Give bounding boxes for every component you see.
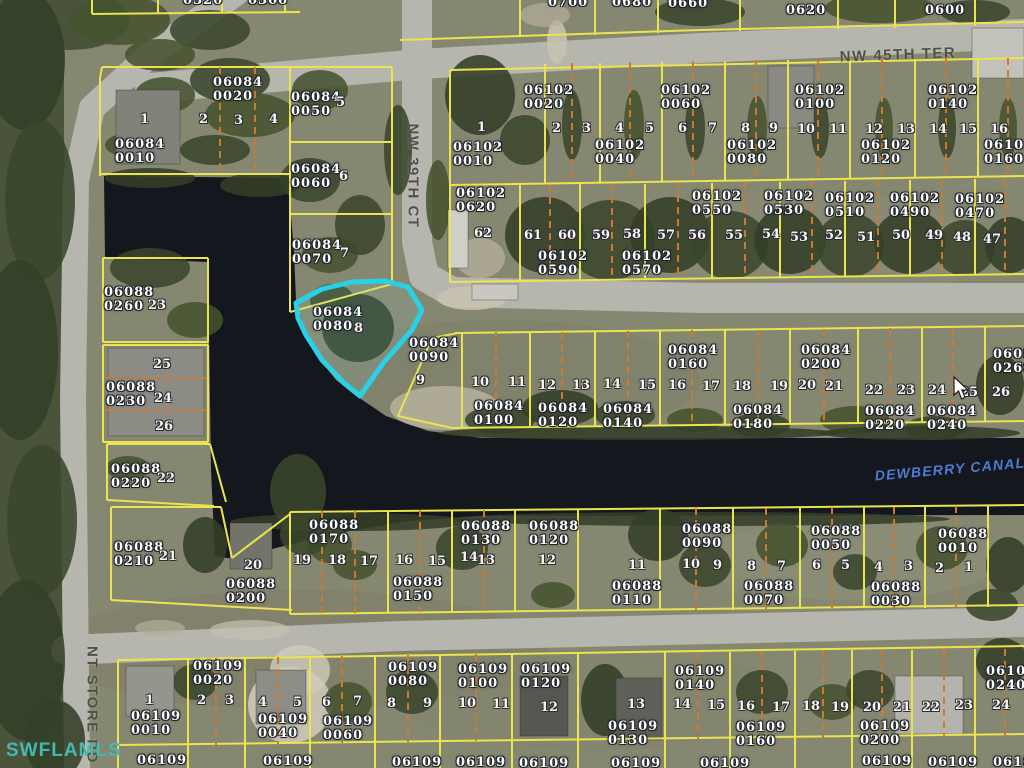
sand-patch (210, 620, 290, 640)
tree-canopy (384, 105, 412, 195)
tree-canopy (180, 135, 250, 165)
house-footprint (472, 284, 518, 300)
tree-canopy (426, 160, 450, 240)
sand-patch (520, 3, 570, 27)
house-footprint (616, 678, 662, 740)
house-footprint (768, 66, 814, 128)
tree-canopy (820, 426, 1020, 440)
tree-canopy (846, 670, 894, 710)
tree-canopy (386, 670, 438, 714)
house-footprint (520, 676, 568, 736)
house-footprint (256, 670, 306, 724)
tree-canopy (105, 168, 195, 188)
tree-canopy (450, 512, 950, 526)
sand-patch (135, 620, 185, 636)
tree-canopy (754, 206, 826, 274)
tree-canopy (173, 664, 217, 700)
mls-watermark: SWFLAMLS (6, 740, 122, 762)
mouse-cursor-icon (953, 376, 975, 402)
tree-canopy (624, 90, 644, 160)
tree-canopy (685, 96, 705, 160)
tree-canopy (976, 355, 1024, 415)
tree-canopy (816, 213, 884, 277)
tree-canopy (628, 509, 688, 561)
tree-canopy (324, 682, 372, 722)
tree-canopy (531, 582, 575, 608)
tree-canopy (335, 195, 385, 255)
tree-canopy (106, 456, 150, 480)
house-footprint (230, 523, 272, 569)
tree-canopy (183, 517, 227, 573)
house-footprint (895, 676, 963, 734)
house-footprint (126, 666, 174, 716)
tree-canopy (679, 543, 731, 587)
tree-canopy (500, 115, 550, 165)
tree-canopy (205, 93, 295, 137)
tree-canopy (292, 70, 348, 110)
map-canvas (0, 0, 1024, 768)
tree-canopy (5, 120, 75, 280)
tree-canopy (436, 526, 488, 570)
tree-canopy (916, 526, 968, 570)
tree-canopy (167, 302, 223, 338)
house-footprint (108, 348, 204, 436)
aerial-parcel-map[interactable]: 0608400100608400200608400500608400600608… (0, 0, 1024, 768)
tree-canopy (220, 173, 300, 197)
tree-canopy (7, 445, 77, 595)
tree-canopy (522, 390, 598, 426)
house-footprint (116, 90, 180, 164)
house-footprint (972, 28, 1024, 78)
tree-canopy (445, 55, 515, 135)
tree-canopy (833, 554, 877, 590)
tree-canopy (110, 248, 190, 288)
tree-canopy (875, 98, 893, 158)
